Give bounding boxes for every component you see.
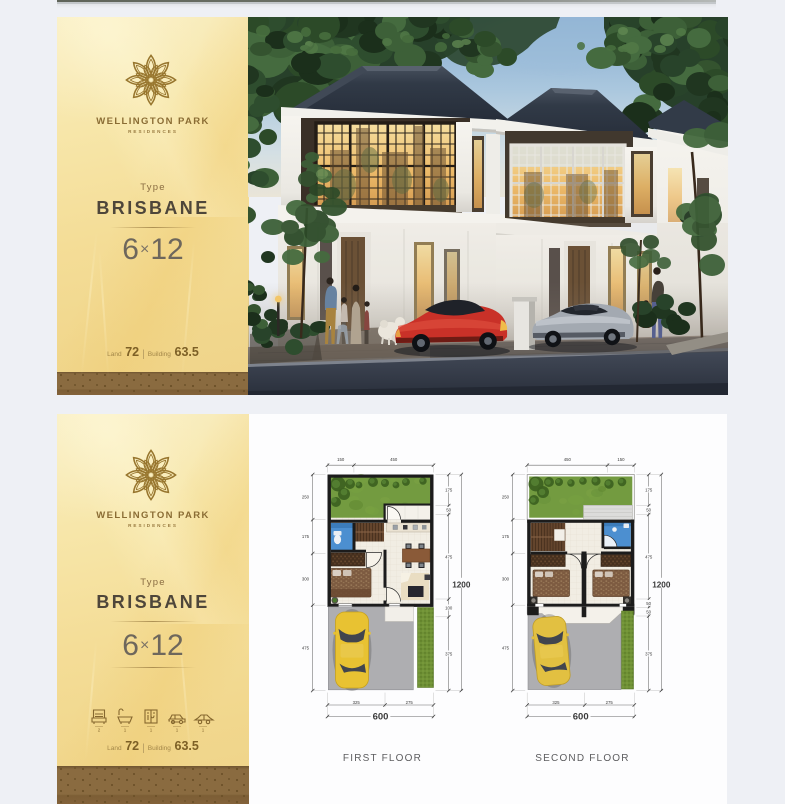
svg-text:1: 1: [150, 728, 153, 733]
svg-text:150: 150: [617, 457, 625, 462]
svg-text:1200: 1200: [452, 580, 471, 589]
svg-text:325: 325: [353, 700, 361, 705]
svg-text:1: 1: [202, 728, 205, 733]
svg-text:450: 450: [390, 457, 398, 462]
svg-text:250: 250: [502, 495, 510, 500]
svg-text:475: 475: [502, 646, 510, 651]
svg-text:275: 275: [606, 700, 614, 705]
svg-text:175: 175: [445, 488, 453, 493]
svg-text:2: 2: [98, 728, 101, 733]
svg-text:300: 300: [302, 577, 310, 582]
svg-text:1: 1: [176, 728, 179, 733]
svg-text:475: 475: [302, 646, 310, 651]
svg-text:100: 100: [445, 606, 453, 611]
svg-text:375: 375: [645, 652, 653, 657]
svg-text:1: 1: [124, 728, 127, 733]
svg-text:50: 50: [646, 601, 651, 606]
svg-text:1200: 1200: [652, 580, 671, 589]
svg-text:175: 175: [302, 534, 310, 539]
svg-text:250: 250: [302, 495, 310, 500]
svg-text:325: 325: [552, 700, 560, 705]
svg-text:50: 50: [446, 508, 451, 513]
svg-text:175: 175: [502, 534, 510, 539]
svg-text:275: 275: [406, 700, 414, 705]
svg-text:475: 475: [445, 555, 453, 560]
svg-text:300: 300: [502, 577, 510, 582]
svg-text:50: 50: [646, 508, 651, 513]
svg-text:50: 50: [646, 609, 651, 614]
svg-text:600: 600: [573, 712, 589, 723]
svg-text:375: 375: [445, 652, 453, 657]
svg-text:475: 475: [645, 555, 653, 560]
svg-text:175: 175: [645, 488, 653, 493]
svg-text:150: 150: [337, 457, 345, 462]
svg-text:450: 450: [564, 457, 572, 462]
svg-text:600: 600: [373, 712, 389, 723]
